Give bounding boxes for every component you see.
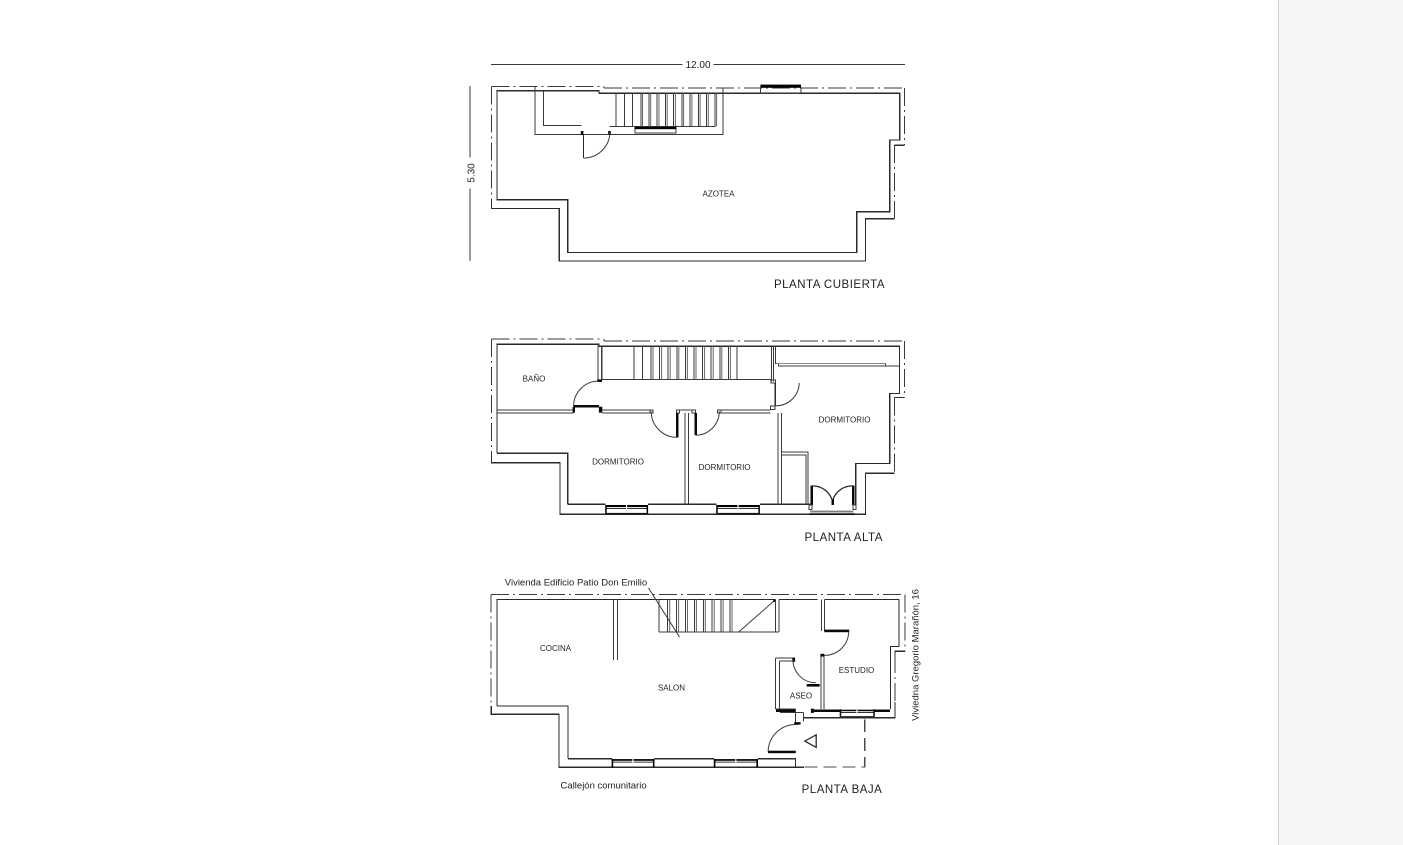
svg-text:5.30: 5.30 [467,163,478,183]
svg-text:SALON: SALON [658,684,685,693]
svg-text:COCINA: COCINA [540,644,572,653]
svg-text:AZOTEA: AZOTEA [702,190,735,199]
svg-text:Callejón comunitario: Callejón comunitario [561,781,647,792]
svg-text:12.00: 12.00 [685,60,710,71]
svg-text:PLANTA ALTA: PLANTA ALTA [805,532,883,544]
svg-text:ASEO: ASEO [790,692,812,701]
svg-text:DORMITORIO: DORMITORIO [592,458,644,467]
svg-text:ESTUDIO: ESTUDIO [839,666,875,675]
svg-text:Vivienda Edificio Patio Don Em: Vivienda Edificio Patio Don Emilio [505,578,647,589]
svg-text:Viviedna Gregorio Marañón, 16: Viviedna Gregorio Marañón, 16 [911,589,922,721]
svg-text:PLANTA BAJA: PLANTA BAJA [802,784,883,796]
svg-text:BAÑO: BAÑO [523,375,546,384]
svg-text:DORMITORIO: DORMITORIO [699,463,751,472]
svg-text:PLANTA CUBIERTA: PLANTA CUBIERTA [774,279,885,291]
svg-text:DORMITORIO: DORMITORIO [819,416,871,425]
